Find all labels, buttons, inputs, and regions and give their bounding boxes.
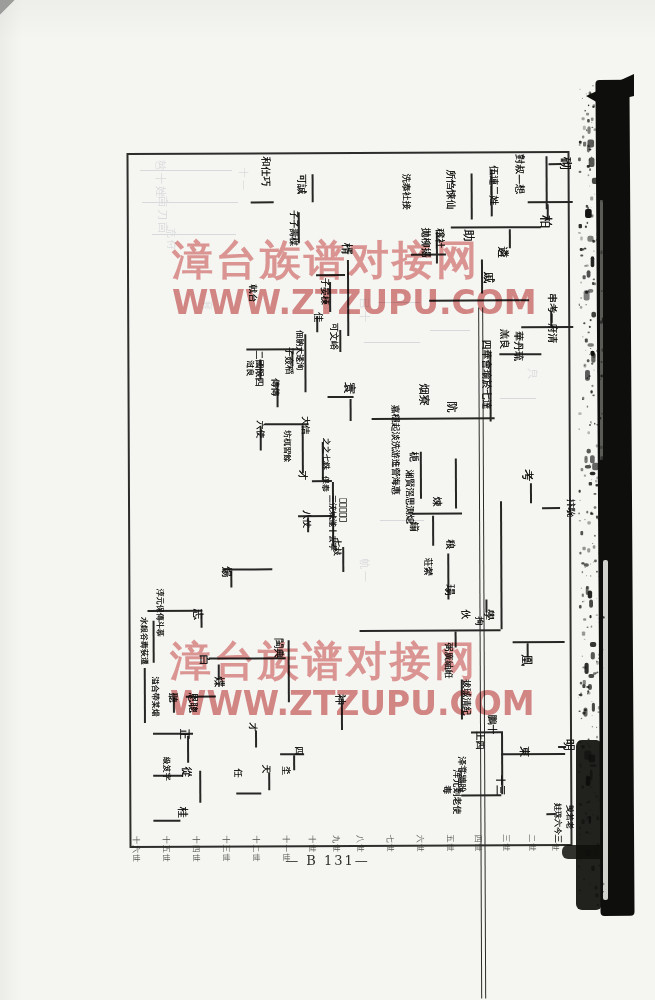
tree-line [432,516,434,546]
tree-label: 弼廣紬絍 [443,643,452,679]
tree-label: 伍連二姓 [488,165,498,205]
tree-line [153,820,180,822]
tree-label: 拘 [474,616,483,625]
tree-line [455,459,457,509]
tree-label: 恩聰 [188,693,198,713]
tree-label: 戟台 [248,284,257,302]
tree-label: 烟寮 [418,384,429,406]
tree-label: 串考—府清 [547,293,557,343]
tree-line [251,201,274,203]
tree-label: 遴 [497,246,509,258]
generation-tick: 九世 [330,835,341,853]
tree-label: 煬 [221,567,232,578]
tree-line [501,753,565,755]
tree-label: 和仕巧 [260,156,270,186]
tree-label: 華丹琉 [513,331,523,361]
tree-label: 明 [563,739,575,751]
tree-label: 白 [198,655,209,666]
tree-label: 可誠 [296,174,306,194]
generation-tick: 一世 [549,834,560,852]
generation-tick: 二世 [526,834,537,852]
tree-label: 上四 [475,731,484,749]
tree-label: 稂 [445,540,455,550]
tree-line [153,621,155,663]
tree-line [187,736,189,763]
tree-label: 四 [294,746,303,755]
generation-tick: 三世 [500,834,511,852]
tree-label: 䒶若老 [565,805,573,829]
tree-label: 柏 [540,215,553,228]
generation-tick: 七世 [384,835,395,853]
tree-label: 煠 [214,677,225,688]
tree-label: 所㤘悚仙 [445,170,455,210]
scan-corner-artifact [0,0,16,20]
tree-label: 梔 [409,452,419,462]
genealogy-tree: 砌對叔—想伍連二姓柏所㤘悚仙洗㤗社接拋柳揚穣社助遴戚串考—府清羔良華丹琉四華會瑜… [128,153,567,155]
tree-label: 六使 [255,420,264,438]
tree-line [455,632,457,648]
tree-line [500,501,502,629]
tree-label: 二國限四 [254,350,263,386]
tree-label: 𡉵甲堂工寗 [339,498,347,522]
tree-label: 天 [261,764,270,773]
tree-label: 保㤗 [321,476,329,492]
tree-label: 抃馻 [566,499,575,517]
tree-label: 四華會瑜於七達 [481,339,491,409]
tree-line [316,274,345,276]
tree-label: 才 [298,470,308,480]
generation-tick: 八世 [354,835,365,853]
tree-label: 洗㤗社接 [401,174,410,210]
tree-label: 毒 [442,786,451,795]
tree-line [268,772,270,790]
tree-label: 佃肭大逶洵 [295,330,303,370]
tree-line [347,260,349,336]
tree-label: 佳 [313,312,323,322]
page-number: — B 131— [0,853,655,868]
tree-label: 學 [483,609,494,620]
tree-line [451,226,541,228]
tree-label: 桂 [177,807,188,818]
generation-tick: 十世 [306,835,317,853]
tree-label: 荘縈 [423,558,432,576]
tree-label: 之之七銖 [322,438,330,470]
tree-label: 子晏楝 [320,278,329,305]
tree-label: 任 [233,768,242,777]
tree-label: 神 [335,694,346,705]
tree-line [288,640,290,702]
tree-label: 八仗 [302,510,311,528]
tree-label: 淳元保傳斗慕 [155,589,163,637]
tree-line [144,668,146,723]
tree-label: 砌 [559,157,572,170]
tree-label: 寰 [343,382,355,394]
tree-label: 級笈字 [162,757,170,781]
tree-label: 穣社 [435,229,445,249]
tree-line [255,730,257,747]
generation-tick: 六世 [414,835,425,853]
scanned-genealogy-page: 㫈十㛗㐭刀㐭㐬㑏十一㠯十㒵㠶一㐮 砌對叔—想伍連二姓柏所㤘悚仙洗㤗社接拋柳揚穣社… [0,0,655,1000]
tree-label: 煉 [432,497,442,507]
tree-label: 東 [519,746,530,757]
tree-label: 水銀谷夀荻遷 [139,617,147,665]
tree-label: 㳡良 [245,360,253,376]
tree-label: 才 [248,722,257,731]
tree-label: 坊杌習餘 [283,430,291,462]
tree-line [528,201,573,203]
tree-label: 戚 [483,271,495,283]
tree-line [293,755,295,770]
tree-line [199,771,201,803]
tree-label: 溢合帶某煬 [151,677,159,717]
tree-label: 子子壽楳 [289,210,298,246]
tree-label: 閩典 [273,638,283,658]
tree-line [304,334,306,392]
tree-label: 大佶 [300,416,309,434]
tree-line [542,507,560,509]
tree-label: 助 [463,229,475,241]
tree-label: 浑元剗老使 [452,770,461,815]
tree-label: 鵬十 [487,714,497,734]
tree-label: 拋柳揚 [421,228,431,258]
tree-label: 考 [522,469,534,481]
tree-label: 對叔—想 [514,154,524,194]
tree-line [350,399,352,421]
tree-label: 鎆 [409,522,419,532]
chart-frame: 砌對叔—想伍連二姓柏所㤘悚仙洗㤗社接拋柳揚穣社助遴戚串考—府清羔良華丹琉四華會瑜… [126,151,572,848]
tree-label: 拔珹清紀 [462,679,471,715]
tree-label: 子僉稻 [284,347,293,374]
tree-label: 從 [181,767,192,778]
tree-label: 凰 [520,654,532,666]
tree-line [420,452,422,499]
tree-label: 楈 [341,243,353,255]
tree-label: 伙 [460,609,470,619]
tree-label: 正 [179,729,190,740]
tree-label: 嘉穩起淡洗游進營海惠 [390,405,400,495]
generation-ticks: 十六世十五世十四世十三世十二世十一世十世九世八世七世六世五世四世三世二世一世 [128,153,567,155]
tree-label: 坔 [281,766,290,775]
tree-line [530,483,532,503]
tree-line [513,641,565,643]
tree-label: 十三 [495,775,505,795]
generation-tick: 五世 [444,835,455,853]
tree-line [312,174,314,202]
tree-line [236,792,261,794]
tree-label: 傳傳 [270,378,279,396]
tree-label: 志 [192,609,203,620]
center-divider [478,307,486,998]
tree-line [412,513,462,515]
tree-line [471,173,473,219]
tree-label: 聽 [168,693,178,703]
tree-label: 湘賢滘思測熄 [405,470,414,524]
generation-tick: 四世 [472,834,483,852]
tree-line [328,396,354,398]
tree-line [429,299,529,301]
tree-line [342,547,344,572]
tree-label: 七敊 [332,538,341,556]
tree-label: 羔良 [499,329,509,349]
tree-line [339,330,341,352]
tree-label: 可文峪 [329,323,338,350]
tree-label: 阬 [446,402,457,413]
tree-label: 瑒 [444,585,455,596]
